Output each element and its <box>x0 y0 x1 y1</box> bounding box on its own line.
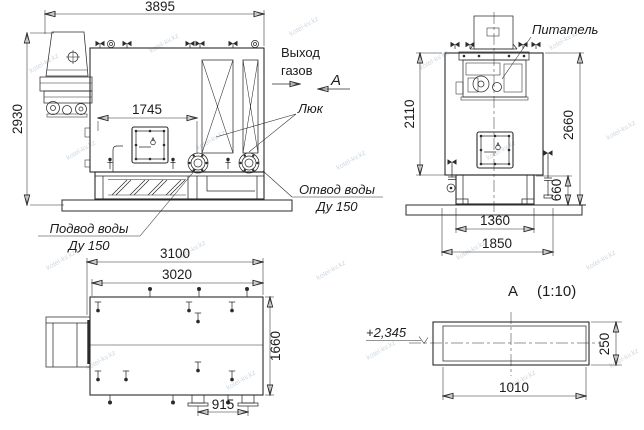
elevation-mark: +2,345 <box>366 325 428 344</box>
label-gas-outlet: Выход газов <box>272 45 320 84</box>
base-frame-front <box>456 175 534 204</box>
side-fitting-left <box>447 159 457 192</box>
label-hatch: Люк <box>216 101 324 152</box>
svg-text:kotel-kv.kz: kotel-kv.kz <box>605 119 637 142</box>
dim-1660: 1660 <box>265 297 283 395</box>
flue-opening-inner <box>443 326 586 361</box>
svg-text:3895: 3895 <box>145 0 175 14</box>
dim-1745: 1745 <box>98 102 197 154</box>
svg-text:1660: 1660 <box>268 331 283 361</box>
detail-title: А <box>508 283 518 300</box>
svg-text:kotel-kv.kz: kotel-kv.kz <box>225 369 257 392</box>
svg-text:250: 250 <box>597 333 612 356</box>
svg-text:kotel-kv.kz: kotel-kv.kz <box>195 129 227 152</box>
svg-text:Выход: Выход <box>281 45 320 60</box>
water-nozzle-1 <box>188 153 208 173</box>
fuel-hopper-front <box>470 16 517 49</box>
svg-text:3020: 3020 <box>162 267 192 282</box>
drain-pipe <box>113 146 123 172</box>
stoker-plan <box>46 317 90 367</box>
svg-text:kotel-kv.kz: kotel-kv.kz <box>335 149 367 172</box>
svg-text:2660: 2660 <box>561 110 576 140</box>
dim-915: 915 <box>198 397 248 416</box>
front-view: Питатель 2110 2660 660 1360 <box>402 12 599 256</box>
svg-text:Ду 150: Ду 150 <box>314 199 358 214</box>
svg-text:1010: 1010 <box>499 380 529 395</box>
ground-side <box>62 200 292 211</box>
dim-660: 660 <box>536 176 572 205</box>
view-arrow-a: А <box>318 72 350 89</box>
svg-text:1360: 1360 <box>480 213 510 228</box>
svg-text:kotel-kv.kz: kotel-kv.kz <box>365 339 397 362</box>
water-nozzle-2 <box>239 153 259 173</box>
svg-text:А: А <box>330 72 341 89</box>
label-water-outlet: Отвод воды Ду 150 <box>263 171 383 214</box>
dim-3020: 3020 <box>92 267 263 296</box>
svg-text:2930: 2930 <box>10 104 25 134</box>
svg-text:2110: 2110 <box>402 99 417 128</box>
svg-text:газов: газов <box>281 63 313 78</box>
detail-scale: (1:10) <box>537 283 576 300</box>
svg-text:+2,345: +2,345 <box>366 325 407 340</box>
drawing-sheet: kotel-kv.kz kotel-kv.kz kotel-kv.kz kote… <box>0 0 644 430</box>
detail-view-a: А (1:10) +2,345 250 1010 <box>366 283 622 400</box>
dim-1010: 1010 <box>443 367 586 400</box>
svg-text:Отвод воды: Отвод воды <box>299 182 375 197</box>
feeder-mechanism <box>456 52 529 100</box>
svg-text:kotel-kv.kz: kotel-kv.kz <box>288 15 320 38</box>
svg-text:1850: 1850 <box>482 236 512 251</box>
svg-text:kotel-kv.kz: kotel-kv.kz <box>65 139 97 162</box>
svg-text:3100: 3100 <box>160 246 190 261</box>
side-view: 3895 2930 1745 Выход газов А Люк <box>10 0 383 253</box>
boiler-body-side <box>90 48 264 172</box>
svg-text:kotel-kv.kz: kotel-kv.kz <box>608 347 640 370</box>
svg-text:kotel-kv.kz: kotel-kv.kz <box>148 32 180 55</box>
dim-1360: 1360 <box>456 208 534 233</box>
svg-text:kotel-kv.kz: kotel-kv.kz <box>28 52 60 75</box>
svg-text:Питатель: Питатель <box>532 22 599 37</box>
plan-view: 3100 3020 1660 915 <box>46 246 283 416</box>
base-frame-side <box>95 172 264 199</box>
svg-text:660: 660 <box>549 179 564 202</box>
stoker-mechanism-side <box>40 77 92 167</box>
boiler-engineering-drawing: kotel-kv.kz kotel-kv.kz kotel-kv.kz kote… <box>0 0 644 430</box>
svg-text:kotel-kv.kz: kotel-kv.kz <box>315 259 347 282</box>
svg-text:kotel-kv.kz: kotel-kv.kz <box>585 249 617 272</box>
furnace-door-side <box>132 127 168 163</box>
svg-text:Подвод воды: Подвод воды <box>50 221 129 236</box>
svg-text:1745: 1745 <box>132 102 162 117</box>
svg-text:Ду 150: Ду 150 <box>66 238 110 253</box>
dim-3895: 3895 <box>45 0 264 46</box>
svg-text:915: 915 <box>212 397 235 412</box>
svg-text:Люк: Люк <box>297 101 324 116</box>
